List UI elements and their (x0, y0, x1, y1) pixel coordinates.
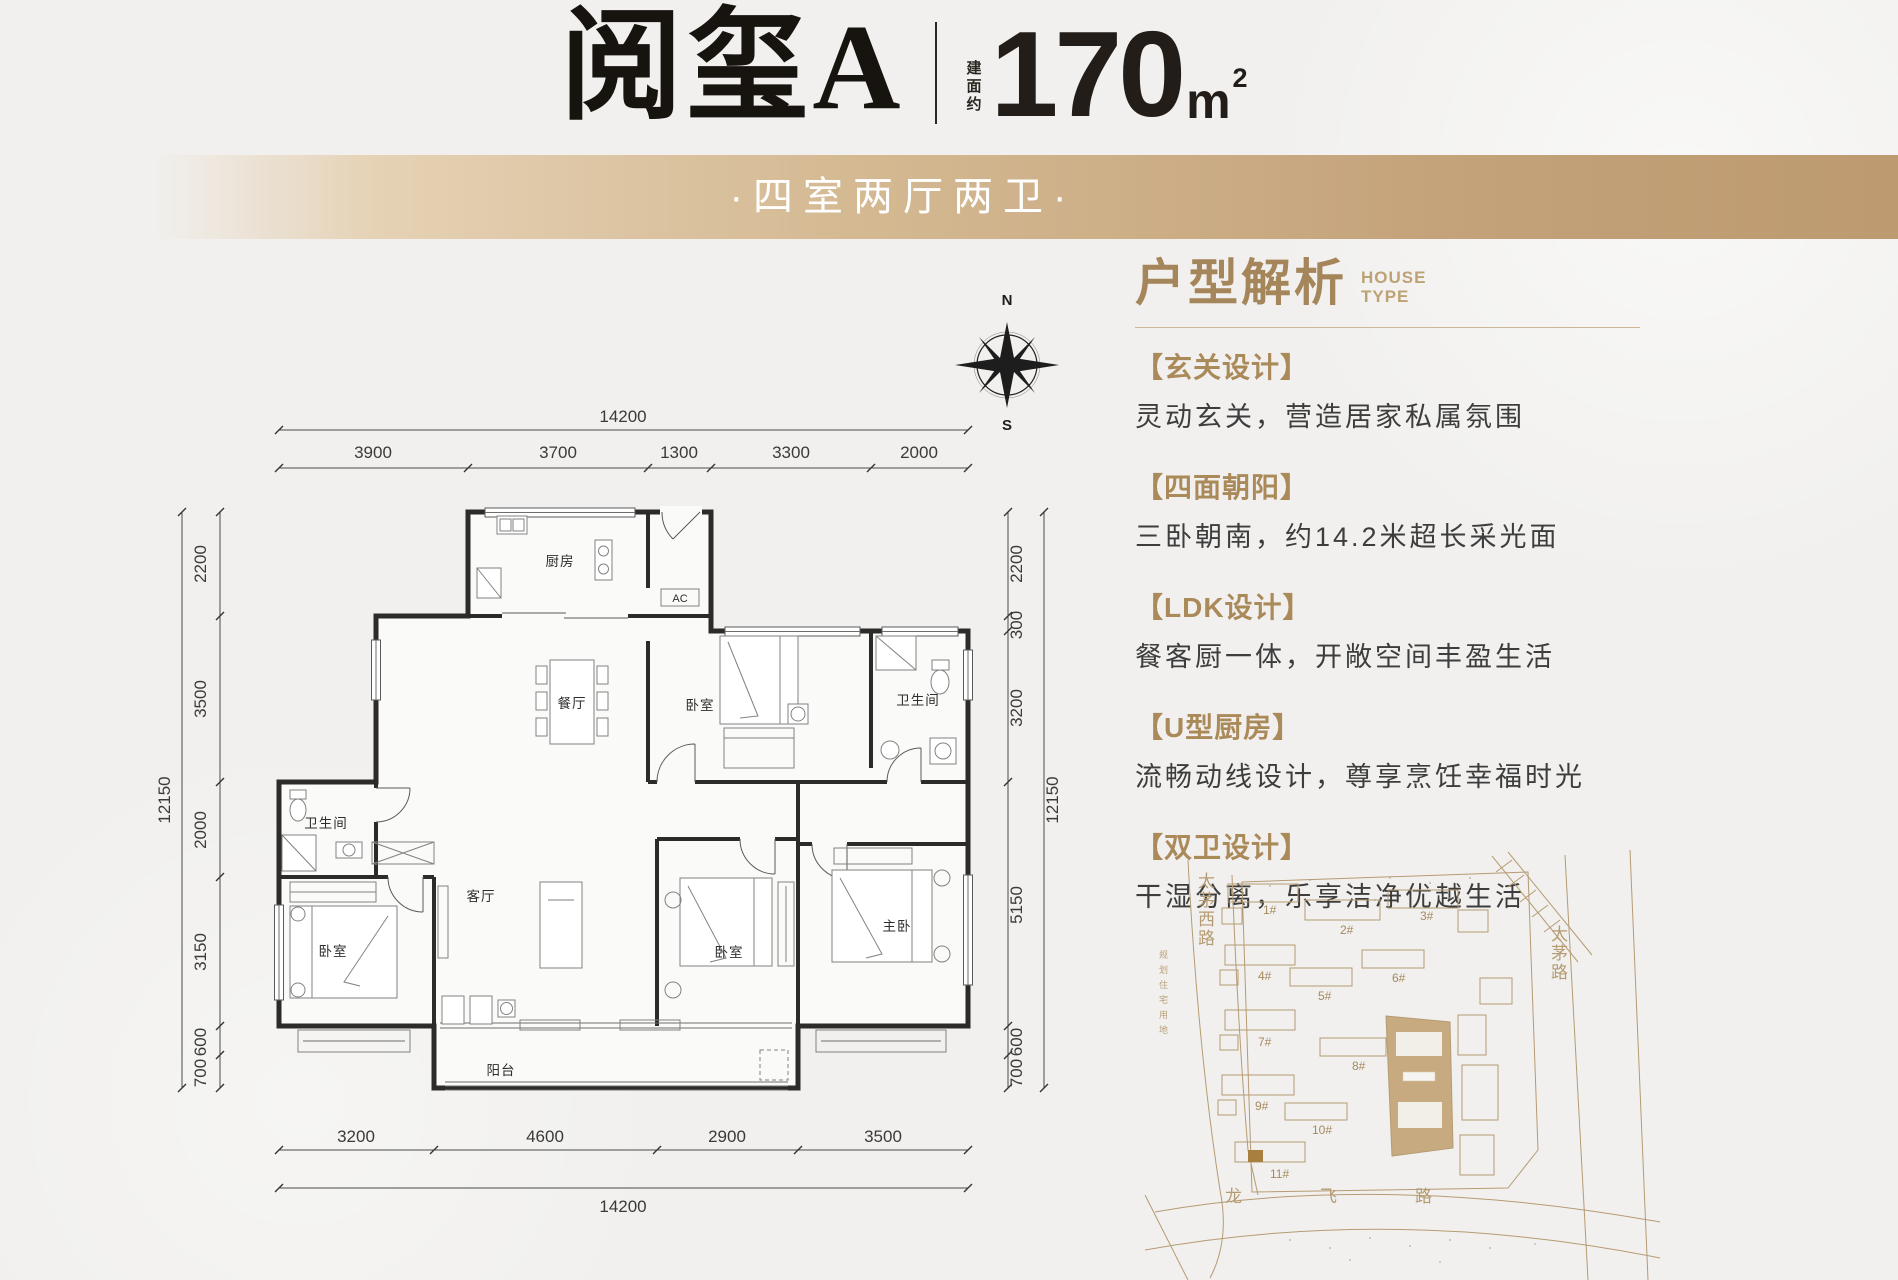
site-plan: 1# 2# 3# 4# 5# 6# 7# 8# 9# 10# 11# (1140, 850, 1670, 1280)
room-kitchen-label: 厨房 (546, 554, 575, 569)
dim-bottom-total: 14200 (599, 1197, 646, 1216)
section-body: 流畅动线设计，尊享烹饪幸福时光 (1135, 755, 1675, 794)
dim-bottom-2: 4600 (526, 1127, 564, 1146)
dim-right-5: 600 (1007, 1028, 1026, 1056)
land-note-label: 规划住宅用地 (1157, 950, 1170, 1040)
section-entrance: 【玄关设计】 灵动玄关，营造居家私属氛围 (1135, 346, 1675, 434)
dim-right-total: 12150 (1043, 776, 1062, 823)
dim-right-6: 700 (1007, 1059, 1026, 1087)
section-heading: 【LDK设计】 (1135, 586, 1675, 626)
section-sunlight: 【四面朝阳】 三卧朝南，约14.2米超长采光面 (1135, 466, 1675, 554)
road-south-label: 龙飞路 (1225, 1182, 1510, 1207)
compass-north-label: N (1002, 292, 1013, 309)
building-label: 5# (1318, 989, 1332, 1003)
site-highlighted-plot (1386, 1016, 1453, 1156)
room-living-label: 客厅 (467, 888, 496, 904)
house-type-analysis: 户型解析 HOUSE TYPE 【玄关设计】 灵动玄关，营造居家私属氛围 【四面… (1135, 256, 1675, 946)
area-label: 建面约 (963, 60, 984, 114)
dim-left-4: 3150 (191, 933, 210, 971)
area-group: 建面约 170 m 2 (963, 18, 1246, 130)
room-master-label: 主卧 (883, 919, 912, 934)
building-label: 6# (1392, 971, 1406, 985)
analysis-title-row: 户型解析 HOUSE TYPE (1135, 256, 1675, 311)
analysis-divider (1135, 327, 1640, 328)
building-label: 3# (1420, 909, 1434, 923)
dim-left-1: 2200 (191, 545, 210, 583)
room-bath-top-label: 卫生间 (896, 693, 940, 708)
section-body: 灵动玄关，营造居家私属氛围 (1135, 395, 1675, 434)
section-body: 餐客厨一体，开敞空间丰盈生活 (1135, 635, 1675, 674)
dim-left-5: 600 (191, 1028, 210, 1056)
site-marker (1248, 1150, 1263, 1162)
building-label: 4# (1258, 969, 1272, 983)
banner-text: ·四室两厅两卫· (0, 155, 1852, 239)
analysis-title: 户型解析 (1135, 256, 1347, 311)
section-body: 三卧朝南，约14.2米超长采光面 (1135, 515, 1675, 554)
dim-bottom-1: 3200 (337, 1127, 375, 1146)
dim-bottom-3: 2900 (708, 1127, 746, 1146)
section-heading: 【玄关设计】 (1135, 346, 1675, 386)
dim-left-total: 12150 (155, 776, 174, 823)
room-balcony-label: 阳台 (487, 1063, 516, 1078)
road-west-label: 太茅西路 (1192, 872, 1217, 1132)
area-unit: m (1186, 72, 1230, 130)
section-ldk: 【LDK设计】 餐客厨一体，开敞空间丰盈生活 (1135, 586, 1675, 674)
dim-left-6: 700 (191, 1059, 210, 1087)
analysis-sections: 【玄关设计】 灵动玄关，营造居家私属氛围 【四面朝阳】 三卧朝南，约14.2米超… (1135, 346, 1675, 914)
dim-top-3: 1300 (660, 443, 698, 462)
dim-left-2: 3500 (191, 680, 210, 718)
room-bedroom-mid-label: 卧室 (715, 944, 744, 960)
site-buildings (1218, 884, 1512, 1175)
room-bedroom-left-label: 卧室 (319, 943, 348, 959)
building-label: 8# (1352, 1059, 1366, 1073)
layout-banner: ·四室两厅两卫· (0, 155, 1898, 239)
section-kitchen: 【U型厨房】 流畅动线设计，尊享烹饪幸福时光 (1135, 706, 1675, 794)
room-dining-label: 餐厅 (558, 696, 587, 711)
section-heading: 【四面朝阳】 (1135, 466, 1675, 506)
floorplan-drawing: 14200 3900 3700 1300 3300 2000 12150 220… (140, 330, 1100, 1220)
dim-top-2: 3700 (539, 443, 577, 462)
dim-bottom-4: 3500 (864, 1127, 902, 1146)
room-bath-left-label: 卫生间 (304, 816, 348, 831)
dim-top-1: 3900 (354, 443, 392, 462)
room-ac-label: AC (672, 593, 687, 605)
dim-right-2: 300 (1007, 611, 1026, 639)
building-label: 7# (1258, 1035, 1272, 1049)
building-label: 10# (1312, 1123, 1332, 1137)
building-label: 11# (1270, 1167, 1289, 1181)
area-superscript: 2 (1233, 63, 1248, 94)
room-bedroom-top-label: 卧室 (686, 697, 715, 713)
building-label: 9# (1255, 1099, 1269, 1113)
plan-title: 阅玺A (560, 4, 904, 132)
section-heading: 【U型厨房】 (1135, 706, 1675, 746)
dim-right-4: 5150 (1007, 886, 1026, 924)
dim-top-5: 2000 (900, 443, 938, 462)
building-label: 1# (1263, 903, 1277, 917)
analysis-subtitle-line2: TYPE (1361, 287, 1426, 306)
walls (279, 512, 968, 1088)
page-header: 阅玺A 建面约 170 m 2 (0, 4, 1852, 132)
building-label: 2# (1340, 923, 1354, 937)
dim-left-3: 2000 (191, 811, 210, 849)
dim-top-total: 14200 (599, 407, 646, 426)
area-value: 170 (991, 18, 1183, 130)
analysis-subtitle: HOUSE TYPE (1361, 268, 1426, 306)
dim-right-1: 2200 (1007, 545, 1026, 583)
road-east-label: 太茅路 (1545, 925, 1570, 1140)
title-divider (935, 22, 937, 124)
dim-top-4: 3300 (772, 443, 810, 462)
analysis-subtitle-line1: HOUSE (1361, 268, 1426, 287)
dim-right-3: 3200 (1007, 689, 1026, 727)
